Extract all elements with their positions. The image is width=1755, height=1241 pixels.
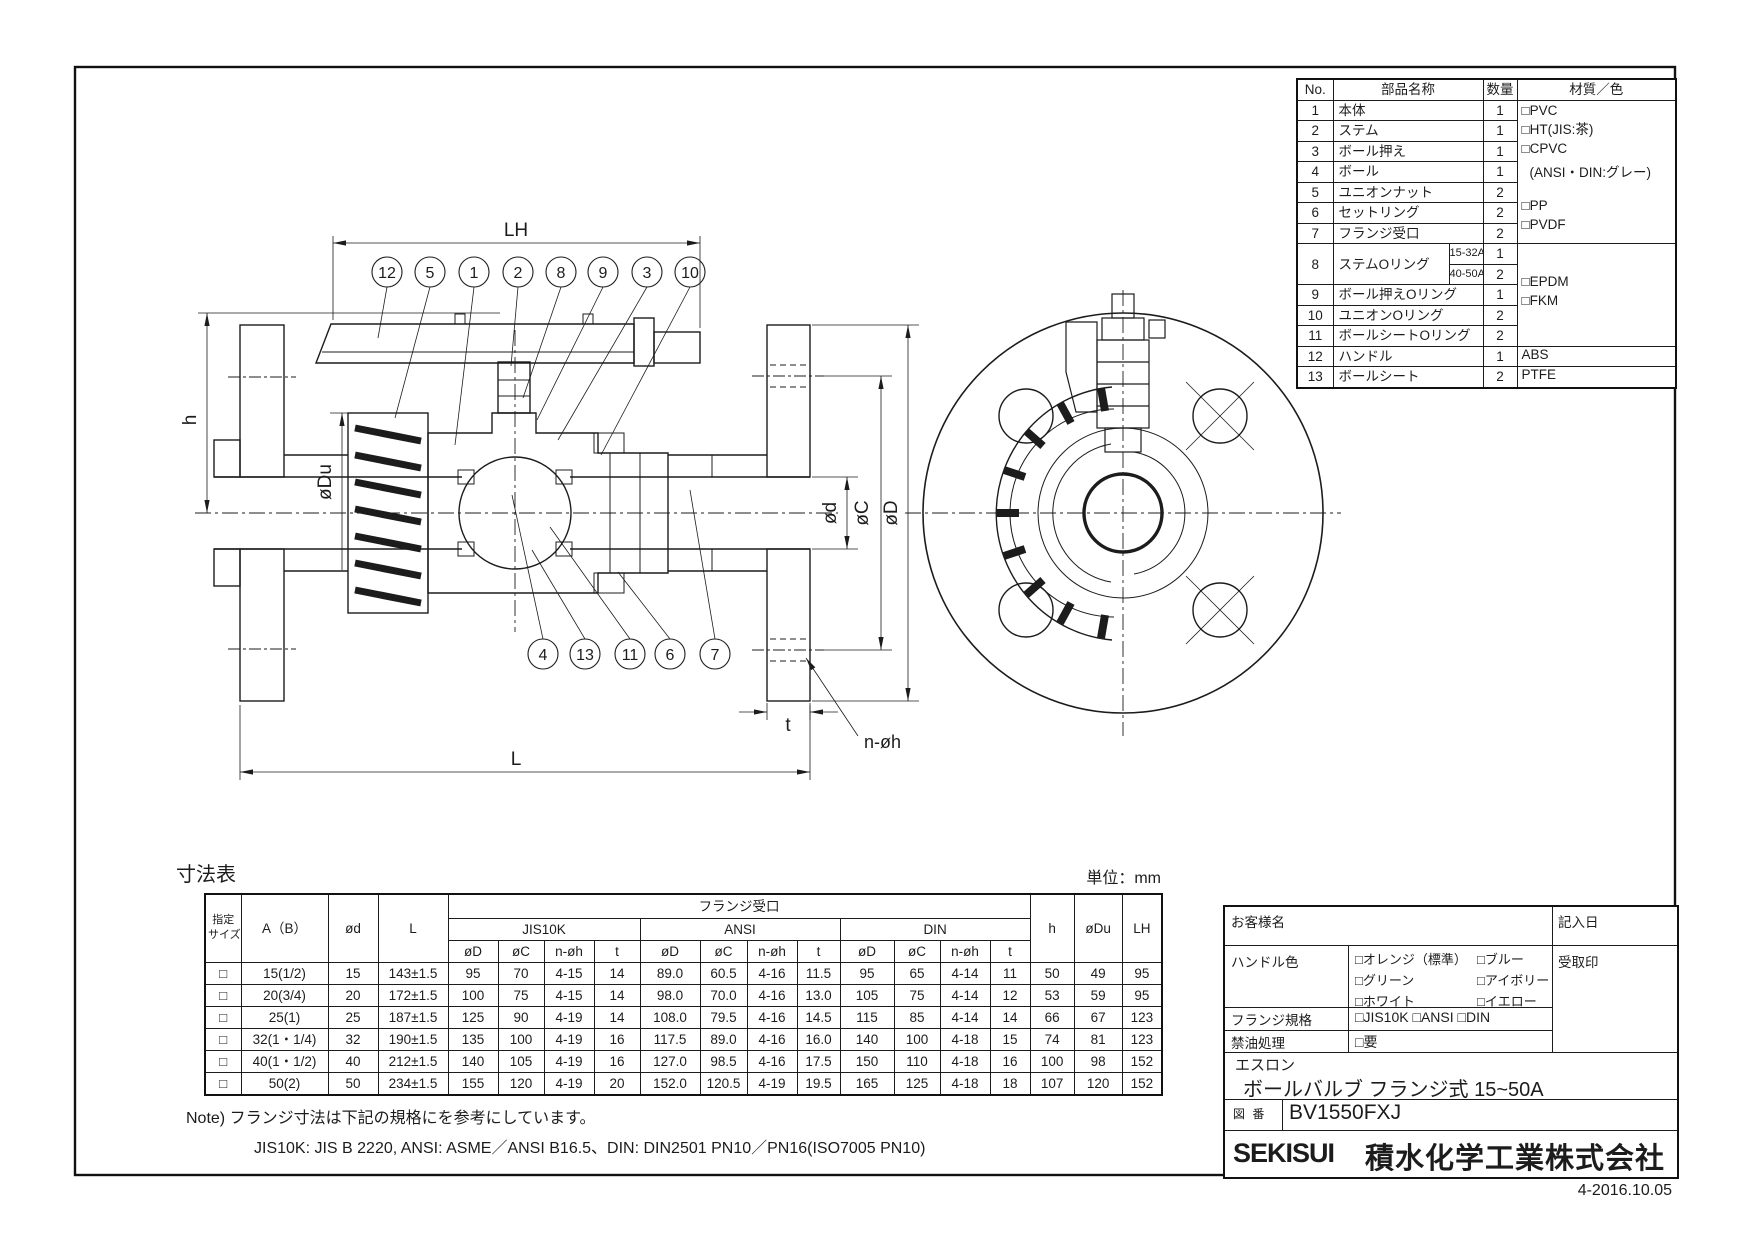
balloon-8: 8: [557, 265, 566, 282]
dimension-table: 指定サイズ A（B） ød L フランジ受口 h øDu LH JIS10K A…: [204, 893, 1163, 1096]
parts-col-qty: 数量: [1483, 79, 1517, 100]
drawing-no-label: 図 番: [1233, 1105, 1266, 1122]
handle-color-option: □グリーン: [1355, 970, 1414, 989]
material-options-orings: □EPDM □FKM: [1517, 244, 1676, 347]
oil-free-label: 禁油処理: [1231, 1032, 1285, 1052]
dim-label-noh: n-øh: [864, 732, 901, 752]
handle-color-option: □イエロー: [1477, 991, 1537, 1010]
parts-col-name: 部品名称: [1333, 79, 1483, 100]
dimensions: [198, 236, 919, 780]
dim-col-flange: フランジ受口: [448, 894, 1030, 918]
dim-row: □40(1・1/2)40212±1.5 1401054-1916 127.098…: [205, 1050, 1162, 1072]
handle-color-option: □アイボリー: [1477, 970, 1549, 989]
part-balloons: [372, 257, 730, 669]
dim-label-t: t: [785, 715, 791, 736]
handle-color-option: □オレンジ（標準）: [1355, 949, 1467, 968]
company-name: 積水化学工業株式会社: [1365, 1135, 1665, 1177]
note-line-2: JIS10K: JIS B 2220, ANSI: ASME／ANSI B16.…: [254, 1134, 925, 1158]
handle-color-label: ハンドル色: [1231, 951, 1299, 971]
customer-name-label: お客様名: [1231, 911, 1285, 931]
flange-standard-options: □JIS10K □ANSI □DIN: [1355, 1009, 1490, 1025]
balloon-2: 2: [514, 265, 523, 282]
dim-row: □25(1)25187±1.5 125904-1914 108.079.54-1…: [205, 1006, 1162, 1028]
balloon-1: 1: [470, 265, 479, 282]
dim-row: □20(3/4)20172±1.5 100754-1514 98.070.04-…: [205, 984, 1162, 1006]
handle-side: [316, 324, 634, 363]
dim-col-din: DIN: [840, 918, 1030, 940]
handle-color-option: □ホワイト: [1355, 991, 1415, 1010]
dim-col-size: 指定サイズ: [205, 894, 241, 962]
drawing-number: BV1550FXJ: [1289, 1101, 1401, 1125]
date-code: 4-2016.10.05: [1490, 1182, 1672, 1200]
unit-label: 単位：mm: [1000, 864, 1161, 888]
receipt-stamp-label: 受取印: [1558, 951, 1599, 971]
parts-row: 1本体1 □PVC □HT(JIS:茶) □CPVC (ANSI・DIN:グレー…: [1297, 100, 1676, 121]
dim-col-ansi: ANSI: [640, 918, 840, 940]
dim-label-h: h: [180, 415, 201, 426]
dim-col-jis: JIS10K: [448, 918, 640, 940]
dim-label-lh: LH: [504, 220, 528, 241]
brand-name: エスロン: [1235, 1054, 1295, 1075]
flange-standard-label: フランジ規格: [1231, 1009, 1312, 1029]
handle-color-option: □ブルー: [1477, 949, 1524, 968]
balloon-9: 9: [599, 265, 608, 282]
dim-table-title: 寸法表: [176, 858, 236, 887]
balloon-11: 11: [622, 647, 639, 664]
balloon-6: 6: [666, 647, 675, 664]
side-view-section: [195, 314, 838, 701]
balloon-3: 3: [643, 265, 652, 282]
product-name: ボールバルブ フランジ式 15~50A: [1243, 1073, 1544, 1102]
parts-table: No. 部品名称 数量 材質／色 1本体1 □PVC □HT(JIS:茶) □C…: [1296, 78, 1677, 389]
balloon-4: 4: [539, 647, 548, 664]
parts-row: 8 ステムOリング 15-32A 1 □EPDM □FKM: [1297, 244, 1676, 265]
dim-label-du: øDu: [315, 464, 336, 500]
balloon-7: 7: [711, 647, 720, 664]
sekisui-logo: SEKISUI: [1233, 1138, 1334, 1169]
entry-date-label: 記入日: [1558, 911, 1599, 931]
balloon-5: 5: [426, 265, 435, 282]
parts-col-material: 材質／色: [1517, 79, 1676, 100]
parts-row: 12ハンドル1ABS: [1297, 346, 1676, 367]
dim-row: □50(2)50234±1.5 1551204-1920 152.0120.54…: [205, 1072, 1162, 1095]
parts-col-no: No.: [1297, 79, 1333, 100]
dim-label-d: øD: [881, 500, 902, 525]
union-nut-ribs: [355, 428, 421, 603]
material-options-body: □PVC □HT(JIS:茶) □CPVC (ANSI・DIN:グレー) □PP…: [1517, 100, 1676, 244]
balloon-12: 12: [378, 265, 396, 282]
title-block: お客様名 記入日 ハンドル色 □オレンジ（標準） □グリーン □ホワイト □ブル…: [1223, 905, 1679, 1179]
drawing-sheet: LH h øDu ød øC øD t L n-øh 12 5: [0, 0, 1755, 1241]
balloon-10: 10: [681, 265, 699, 282]
oil-free-option: □要: [1355, 1032, 1377, 1052]
dim-row: □32(1・1/4)32190±1.5 1351004-1916 117.589…: [205, 1028, 1162, 1050]
dim-label-d-small: ød: [820, 502, 841, 524]
dim-label-c: øC: [852, 500, 873, 525]
front-view-flange: [905, 290, 1341, 736]
dim-label-l: L: [511, 749, 522, 770]
parts-row: 13ボールシート2PTFE: [1297, 367, 1676, 388]
dim-row: □15(1/2)15143±1.5 95704-1514 89.060.54-1…: [205, 962, 1162, 984]
balloon-13: 13: [576, 647, 594, 664]
note-line-1: Note) フランジ寸法は下記の規格にを参考にしています。: [186, 1104, 596, 1128]
